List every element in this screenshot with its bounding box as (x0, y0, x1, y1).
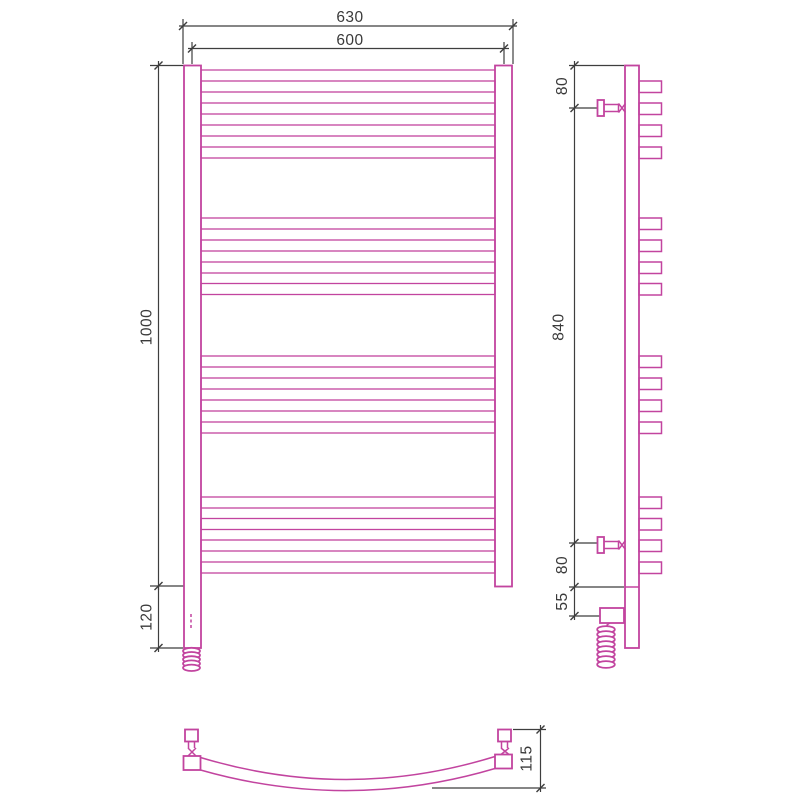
dim-label-lower-extension: 120 (139, 603, 156, 630)
front-bar (201, 422, 495, 433)
coil-loop (597, 661, 615, 668)
technical-drawing: 630 600 1000 120 (0, 0, 800, 800)
dim-label-height: 1000 (139, 309, 156, 345)
side-bar-end (639, 284, 662, 296)
side-bar-end (639, 519, 662, 531)
post-section (184, 756, 201, 770)
side-bar-end (639, 240, 662, 252)
front-bar (201, 562, 495, 573)
front-bar (201, 147, 495, 158)
front-bar (201, 262, 495, 273)
front-bar (201, 103, 495, 114)
bracket-plate (598, 537, 605, 553)
front-bar (201, 284, 495, 295)
front-view: 630 600 1000 120 (139, 9, 518, 671)
bottom-wall-bracket (598, 537, 626, 553)
bracket-plate (598, 100, 605, 116)
front-bar (201, 81, 495, 92)
top-wall-bracket (598, 100, 626, 116)
dimension-600: 600 (188, 32, 509, 64)
bottom-view: 115 (184, 725, 547, 792)
side-bar-end (639, 422, 662, 434)
front-bar (201, 218, 495, 229)
side-bar-end (639, 562, 662, 574)
side-bar-ends (639, 81, 662, 574)
front-bar (201, 400, 495, 411)
front-bar (201, 519, 495, 530)
dim-label-side-top-offset: 80 (554, 77, 571, 95)
side-rail (625, 66, 639, 649)
side-bar-end (639, 400, 662, 412)
side-bar-end (639, 262, 662, 274)
front-bars (201, 81, 495, 573)
front-bar (201, 497, 495, 508)
coil-loop (183, 665, 200, 671)
front-bar (201, 125, 495, 136)
dimension-120: 120 (139, 586, 184, 652)
drawing-page: 630 600 1000 120 (0, 0, 800, 800)
side-bar-end (639, 147, 662, 159)
front-bar (201, 378, 495, 389)
dim-label-heater-offset: 55 (554, 592, 571, 610)
bracket-plate (498, 730, 511, 742)
dimension-1000: 1000 (139, 61, 185, 590)
left-post (184, 66, 201, 649)
side-bar-end (639, 218, 662, 230)
side-bar-end (639, 497, 662, 509)
front-bar (201, 240, 495, 251)
front-power-coil (183, 648, 200, 671)
side-dimensions: 80 840 80 55 (551, 61, 625, 620)
post-section (495, 755, 512, 769)
right-post (495, 66, 512, 587)
side-bar-end (639, 125, 662, 137)
bracket-plate (185, 730, 198, 742)
bottom-right-bracket (495, 730, 512, 769)
dim-label-center-width: 600 (336, 32, 363, 49)
dim-label-overall-width: 630 (336, 9, 363, 26)
dim-label-bracket-span: 840 (551, 313, 568, 340)
side-bar-end (639, 81, 662, 93)
side-bar-end (639, 103, 662, 115)
dim-label-depth: 115 (519, 745, 536, 771)
front-bar (201, 540, 495, 551)
side-view: 80 840 80 55 (551, 61, 662, 668)
side-bar-end (639, 540, 662, 552)
side-power-coil (597, 626, 615, 668)
side-bar-end (639, 356, 662, 368)
curved-bar-outer-edge (201, 757, 496, 780)
dim-label-side-bottom-offset: 80 (554, 556, 571, 574)
side-bar-end (639, 378, 662, 390)
bottom-left-bracket (184, 730, 201, 771)
heater-housing (600, 608, 624, 623)
front-bar (201, 356, 495, 367)
